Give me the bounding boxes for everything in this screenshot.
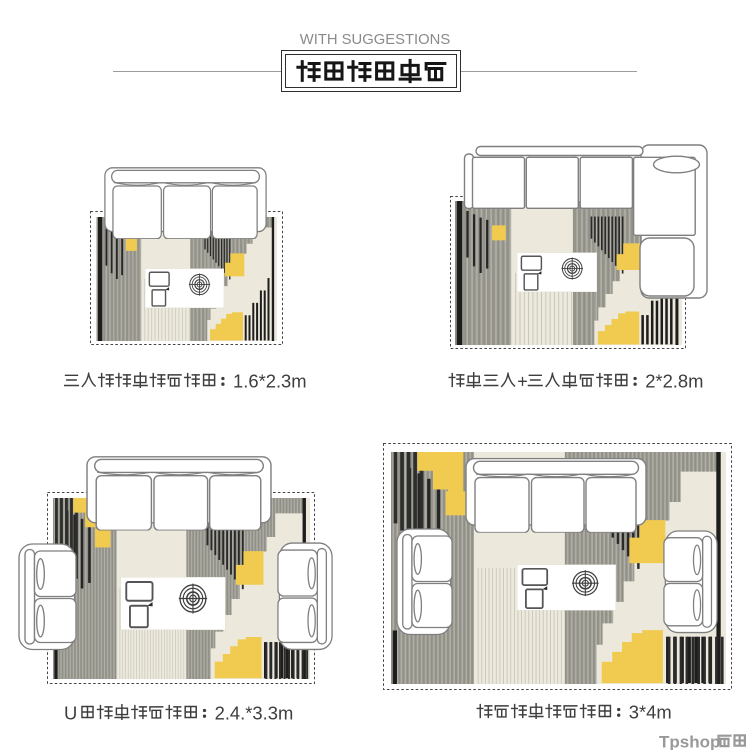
svg-text:Tpshop: Tpshop (659, 733, 720, 751)
svg-text:2.4.*3.3m: 2.4.*3.3m (215, 703, 294, 724)
svg-text:3*4m: 3*4m (629, 702, 672, 723)
svg-text:+: + (517, 372, 528, 392)
svg-text:WITH SUGGESTIONS: WITH SUGGESTIONS (300, 32, 451, 48)
svg-text:2*2.8m: 2*2.8m (645, 371, 703, 392)
svg-text:U: U (64, 703, 77, 724)
svg-text:1.6*2.3m: 1.6*2.3m (233, 371, 307, 392)
